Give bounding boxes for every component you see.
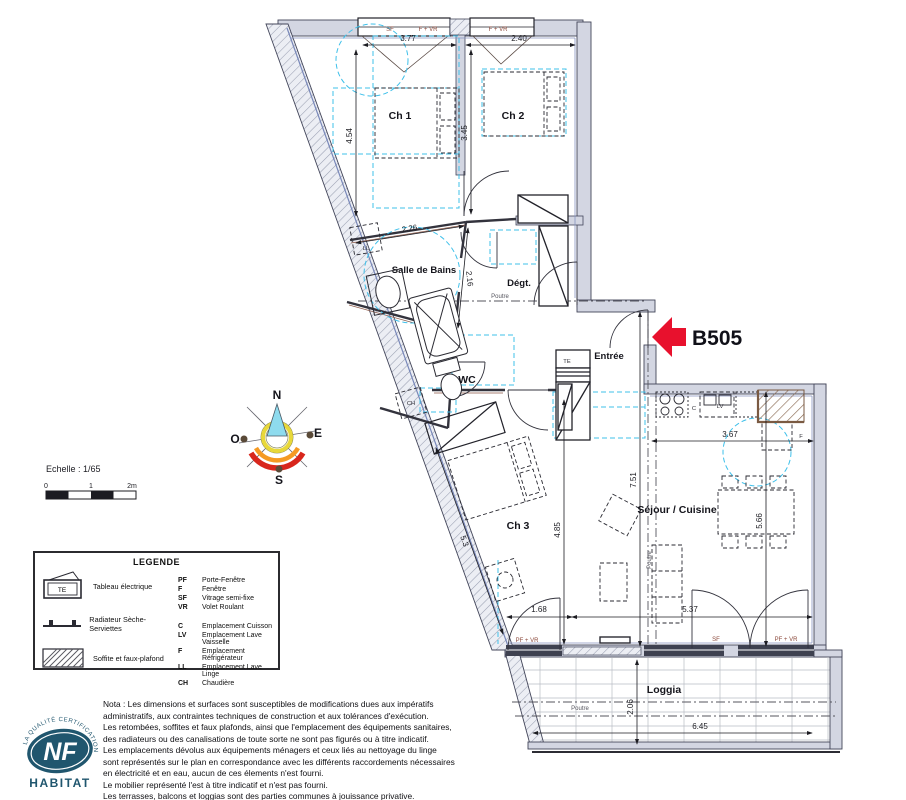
dim-sdb-depth: 2.16 [464,271,475,288]
opening-fvr-ch1: F + VR [419,27,439,33]
beam-label-loggia: Poutre [571,706,589,712]
nota-line: Nota : Les dimensions et surfaces sont s… [103,699,505,711]
scale-title: Echelle : 1/65 [46,464,101,474]
opening-fvr-ch2: F + VR [489,27,509,33]
legend-abbr-label: Porte-Fenêtre [202,577,278,584]
dim-sejour-mid-height: 5.66 [755,513,764,529]
compass-south: S [275,473,283,487]
floor-plan-page: 3.77 2.40 4.54 3.45 2.26 2.16 3.67 7.51 … [0,0,906,800]
legend-box: LEGENDE TE Tableau électrique Radiateur … [33,551,280,670]
room-label-ch3: Ch 3 [507,520,530,532]
opening-sf-top: SF [386,27,394,33]
room-label-wc: WC [458,374,476,386]
scale-tick-0: 0 [44,483,48,490]
legend-item-soffite: Soffite et faux-plafond [41,647,171,669]
legend-abbr: VR [178,604,194,611]
dim-ch1-width: 3.77 [400,34,416,43]
dim-ch3-height: 4.85 [553,522,562,538]
dim-sejour-height: 7.51 [629,472,638,488]
legend-abbr-label: Chaudière [202,680,278,687]
nota-line: Les emplacements dévolus aux équipements… [103,745,505,757]
nota-line: Les terrasses, balcons et loggias sont d… [103,791,505,800]
legend-item-radiateur: Radiateur Sèche-Serviettes [41,615,171,633]
legend-abbreviations: PFPorte-Fenêtre FFenêtre SFVitrage semi-… [178,577,278,687]
dim-sejour-width: 5.37 [682,605,698,614]
unit-arrow-icon [652,317,686,357]
beam-label-hall: Poutre [491,294,509,300]
loggia-floor-grid [505,655,838,748]
room-label-sejour: Séjour / Cuisine [637,504,717,516]
room-label-ch2: Ch 2 [502,110,525,122]
legend-abbr: C [178,623,194,630]
scale-tick-2m: 2m [127,483,137,490]
legend-abbr: LL [178,664,194,678]
nota-line: Les retombées, soffites et faux plafonds… [103,722,505,734]
logo-nf-text: NF [43,738,77,766]
dim-loggia-width: 6.45 [692,722,708,731]
legend-item-tableau: TE Tableau électrique [41,571,171,601]
room-label-degt: Dégt. [507,278,531,289]
legend-abbr: CH [178,680,194,687]
legend-abbr-label: Volet Roulant [202,604,278,611]
kitchen-fixtures [656,390,804,422]
scale-tick-1: 1 [89,483,93,490]
soffite-icon [41,647,85,669]
legend-abbr-label: Emplacement Réfrigérateur [202,648,278,662]
legend-abbr-label: Fenêtre [202,586,278,593]
legend-title: LEGENDE [35,557,278,567]
opening-pfvr-ch3: PF + VR [516,638,540,644]
nota-text: Nota : Les dimensions et surfaces sont s… [103,699,505,800]
svg-text:TE: TE [58,587,67,594]
windows-bottom [506,645,814,656]
legend-abbr-label: Emplacement Lave Linge [202,664,278,678]
unit-number: B505 [692,327,743,350]
compass-north: N [273,388,282,402]
legend-abbr-label: Emplacement Cuisson [202,623,278,630]
equip-lave-linge: LL [363,246,370,252]
nf-habitat-logo: LA QUALITÉ CERTIFICATION NF HABITAT [13,703,107,797]
legend-abbr: F [178,648,194,662]
room-label-ch1: Ch 1 [389,110,412,122]
equip-chaudiere: CH [407,401,415,407]
equip-cuisson: C [692,406,696,412]
legend-symbols: TE Tableau électrique Radiateur Sèche-Se… [41,571,171,669]
logo-habitat-text: HABITAT [29,776,90,790]
scale-bar: Echelle : 1/65 0 1 2m [44,464,137,499]
room-label-loggia: Loggia [647,684,682,696]
legend-abbr: PF [178,577,194,584]
equip-tableau-electrique: TE [563,359,571,365]
tableau-electrique-icon: TE [41,571,85,601]
legend-label-soffite: Soffite et faux-plafond [93,654,164,663]
legend-abbr: LV [178,632,194,646]
equip-lave-vaisselle: LV [717,404,724,410]
dim-ch1-height: 4.54 [345,128,354,144]
legend-abbr: F [178,586,194,593]
room-label-entree: Entrée [594,351,624,362]
legend-abbr-label: Vitrage semi-fixe [202,595,278,602]
dim-ch2-width: 2.40 [511,34,527,43]
dim-ch3-width: 1.68 [531,605,547,614]
nf-habitat-logo-icon: LA QUALITÉ CERTIFICATION NF HABITAT [13,703,107,797]
compass-rose: N E O S [230,388,322,487]
equip-refrigerateur: F [799,434,803,440]
compass-east: E [314,426,322,440]
dim-loggia-depth: 2.06 [626,699,635,715]
dim-ch2-height: 3.45 [460,125,469,141]
legend-label-tableau: Tableau électrique [93,582,152,591]
opening-sf-sejour: SF [712,637,720,643]
legend-abbr: SF [178,595,194,602]
dim-cuisine-width: 3.67 [722,430,738,439]
unit-callout: B505 [652,317,743,357]
nota-line: sont représentés sur le plan en correspo… [103,757,505,769]
nota-line: administratifs, aux contraintes techniqu… [103,711,505,723]
opening-pfvr-sejour: PF + VR [775,637,799,643]
legend-label-radiateur: Radiateur Sèche-Serviettes [89,615,171,633]
radiateur-icon [41,618,81,630]
nota-line: en électricité et en eau, aucun de ces é… [103,768,505,780]
floor-plan-drawing: 3.77 2.40 4.54 3.45 2.26 2.16 3.67 7.51 … [0,0,906,800]
legend-abbr-label: Emplacement Lave Vaisselle [202,632,278,646]
compass-west: O [230,432,239,446]
beam-label-sejour: Poutre [647,551,653,569]
nota-line: des radiateurs ou des canalisations de t… [103,734,505,746]
room-label-sdb: Salle de Bains [392,265,456,276]
nota-line: Le mobilier représenté l'est à titre ind… [103,780,505,792]
door-arcs [450,171,808,650]
